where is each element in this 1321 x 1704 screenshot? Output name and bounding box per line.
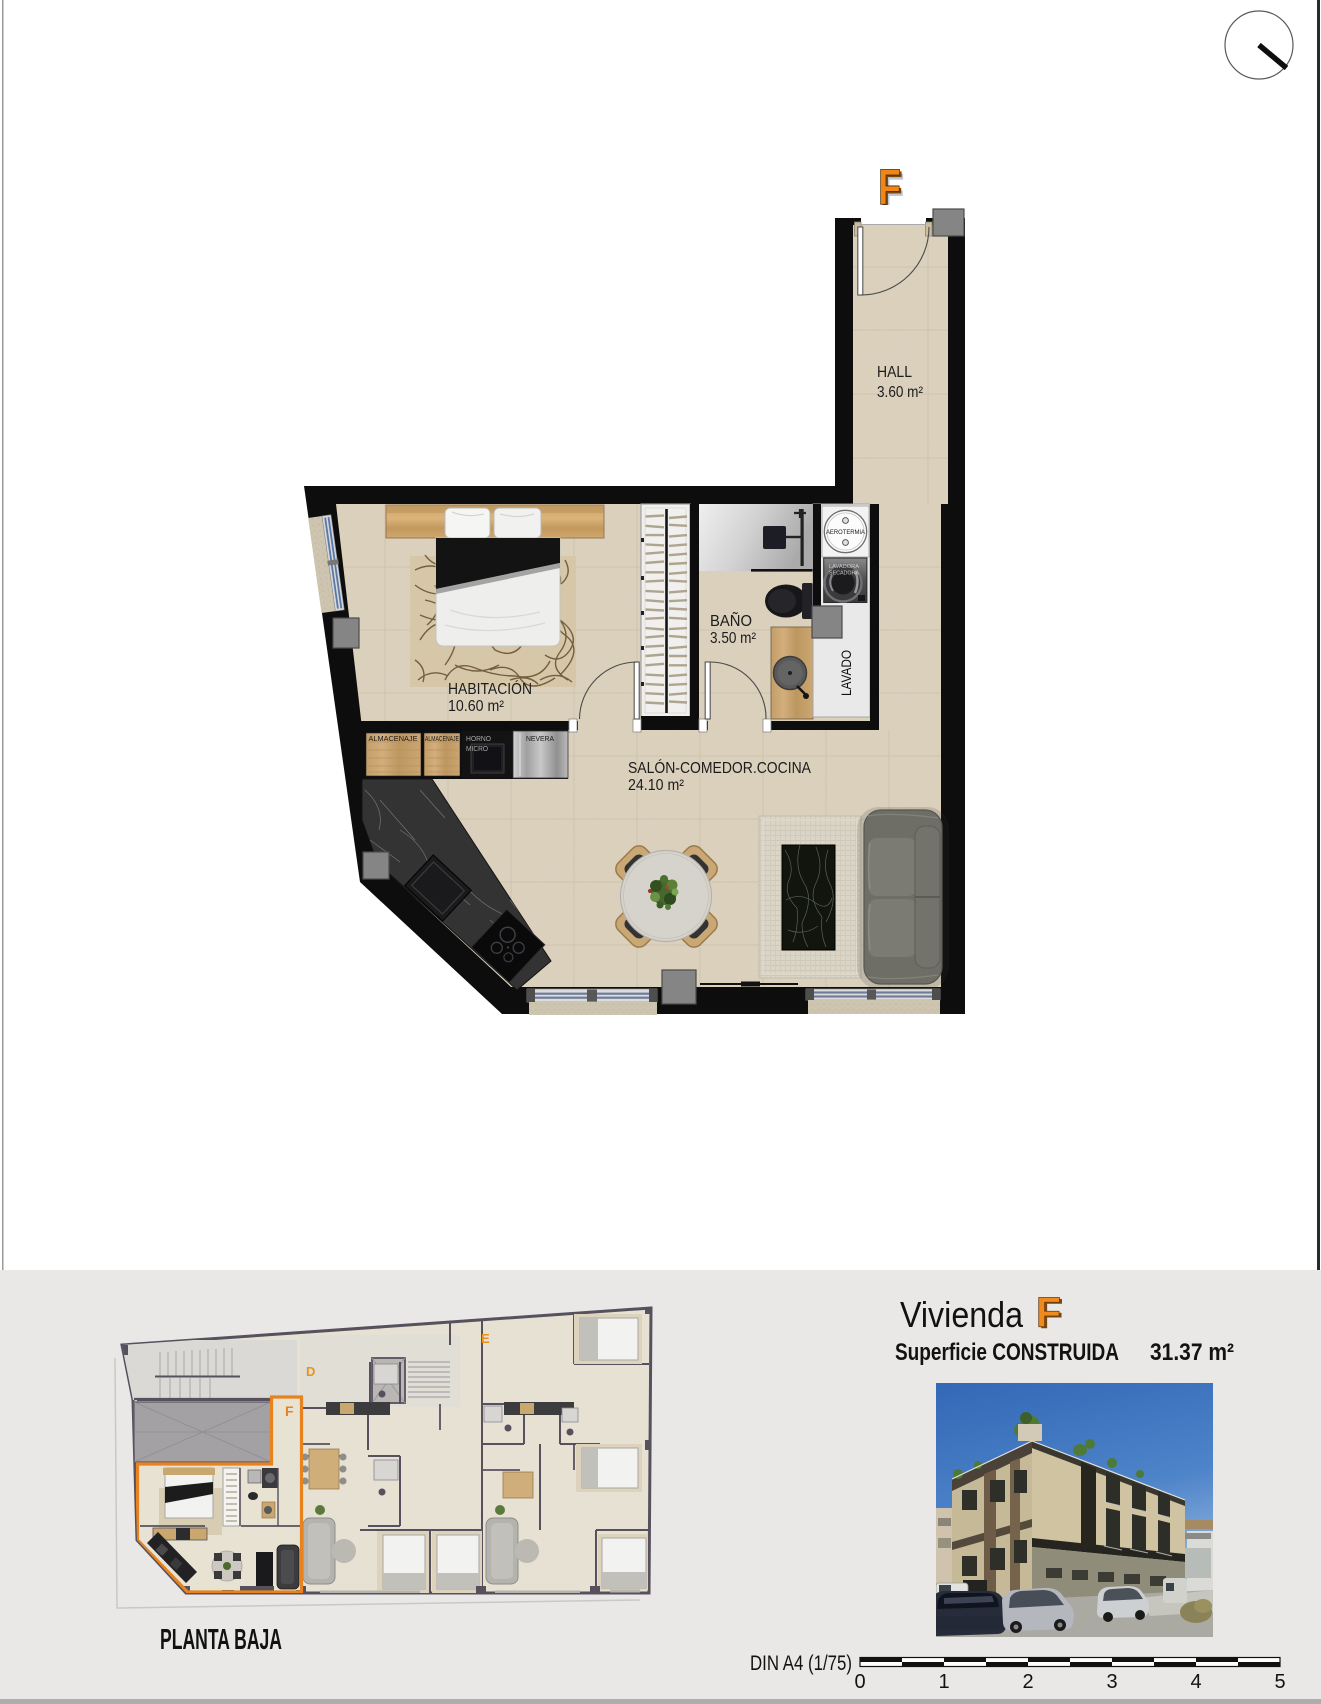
- svg-text:HALL: HALL: [877, 364, 912, 381]
- svg-text:HABITACIÓN: HABITACIÓN: [448, 681, 532, 698]
- svg-text:31.37 m²: 31.37 m²: [1150, 1339, 1234, 1366]
- svg-text:ALMACENAJE: ALMACENAJE: [425, 736, 459, 743]
- svg-text:HORNO: HORNO: [466, 734, 491, 743]
- svg-text:D: D: [306, 1364, 315, 1379]
- svg-text:NEVERA: NEVERA: [526, 736, 554, 743]
- svg-text:3.60 m²: 3.60 m²: [877, 384, 923, 401]
- svg-text:Vivienda: Vivienda: [900, 1294, 1024, 1335]
- svg-text:4: 4: [1190, 1671, 1201, 1693]
- svg-text:ALMACENAJE: ALMACENAJE: [369, 736, 418, 743]
- svg-text:F: F: [285, 1403, 294, 1419]
- svg-text:5: 5: [1274, 1671, 1285, 1693]
- svg-text:LAVADO: LAVADO: [839, 650, 854, 696]
- svg-text:2: 2: [1022, 1671, 1033, 1693]
- svg-text:3.50 m²: 3.50 m²: [710, 630, 756, 647]
- svg-text:DIN A4 (1/75): DIN A4 (1/75): [750, 1652, 852, 1675]
- svg-text:0: 0: [854, 1671, 865, 1693]
- svg-text:1: 1: [938, 1671, 949, 1693]
- svg-text:10.60 m²: 10.60 m²: [448, 698, 504, 715]
- svg-text:AEROTERMIA: AEROTERMIA: [826, 529, 866, 536]
- svg-text:Superficie CONSTRUIDA: Superficie CONSTRUIDA: [895, 1339, 1119, 1366]
- svg-text:SECADORA: SECADORA: [829, 571, 860, 577]
- svg-text:MICRO: MICRO: [466, 744, 488, 753]
- svg-text:LAVADORA: LAVADORA: [829, 564, 860, 570]
- svg-text:24.10 m²: 24.10 m²: [628, 777, 684, 794]
- svg-text:PLANTA BAJA: PLANTA BAJA: [160, 1624, 282, 1656]
- svg-text:SALÓN-COMEDOR.COCINA: SALÓN-COMEDOR.COCINA: [628, 760, 812, 777]
- svg-text:BAÑO: BAÑO: [710, 613, 752, 630]
- svg-text:F: F: [1036, 1289, 1061, 1337]
- svg-text:3: 3: [1106, 1671, 1117, 1693]
- svg-text:E: E: [481, 1331, 490, 1346]
